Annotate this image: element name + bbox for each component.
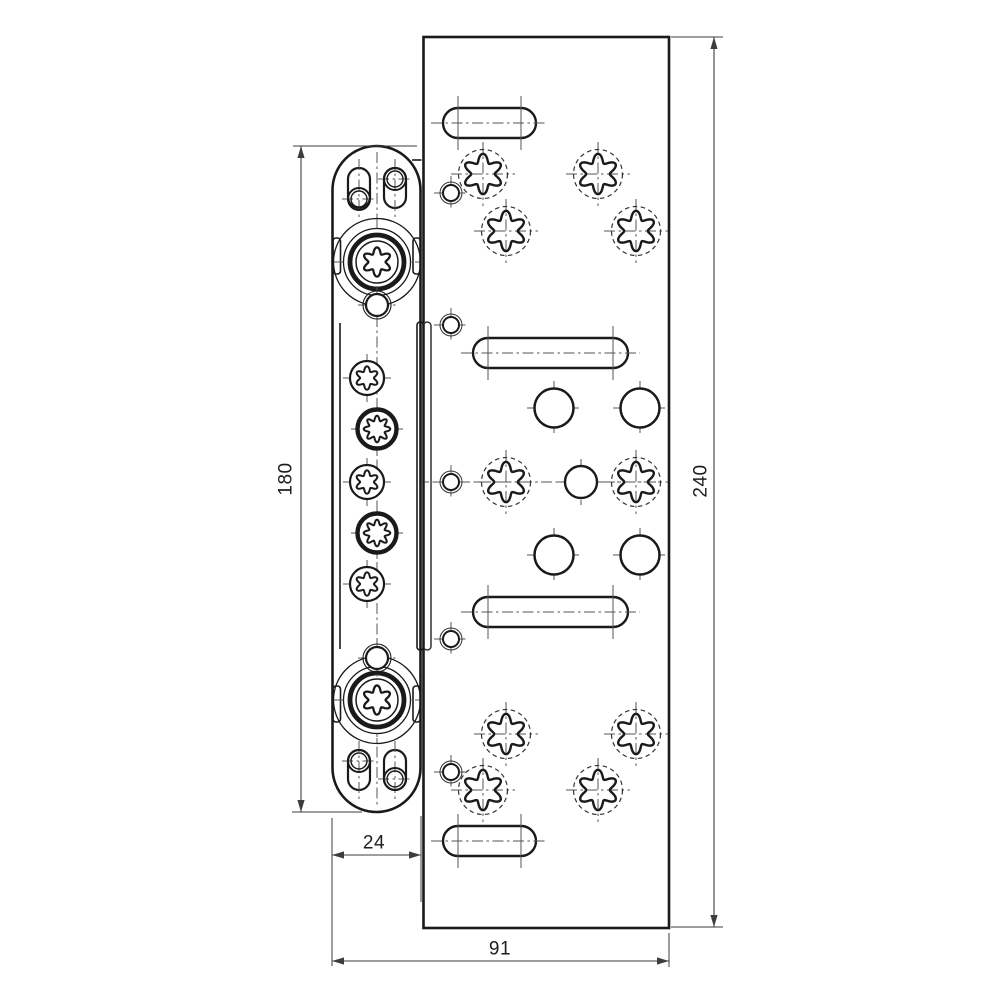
plate-small-hole [443, 631, 459, 647]
hinge-small-hole [366, 647, 388, 669]
dim-label-plate-height: 240 [692, 464, 711, 497]
plate-small-hole [443, 474, 459, 490]
plate-medium-hole [621, 389, 660, 428]
dim-91-arrow [657, 957, 669, 964]
dim-240-arrow [710, 37, 717, 49]
dim-180-arrow [297, 800, 304, 812]
dim-label-hinge-width: 24 [363, 834, 385, 853]
dim-label-plate-width: 91 [489, 940, 511, 959]
hinge-big-screw-ring [350, 673, 404, 727]
dim-24-arrow [409, 851, 421, 858]
plate-medium-hole [535, 389, 574, 428]
plate-small-hole [443, 764, 459, 780]
plate-medium-hole [535, 536, 574, 575]
cad-technical-drawing [0, 0, 1000, 1000]
plate-medium-hole [621, 536, 660, 575]
drawing-canvas: 180 24 240 91 [0, 0, 1000, 1000]
dim-180-arrow [297, 146, 304, 158]
plate-small-hole [443, 185, 459, 201]
plate-center-hole [565, 466, 597, 498]
dim-24-arrow [332, 851, 344, 858]
dim-240-arrow [710, 915, 717, 927]
dim-label-hinge-height: 180 [277, 462, 296, 495]
hinge-big-screw-ring [350, 235, 404, 289]
plate-small-hole [443, 317, 459, 333]
dim-91-arrow [332, 957, 344, 964]
hinge-small-hole [366, 294, 388, 316]
